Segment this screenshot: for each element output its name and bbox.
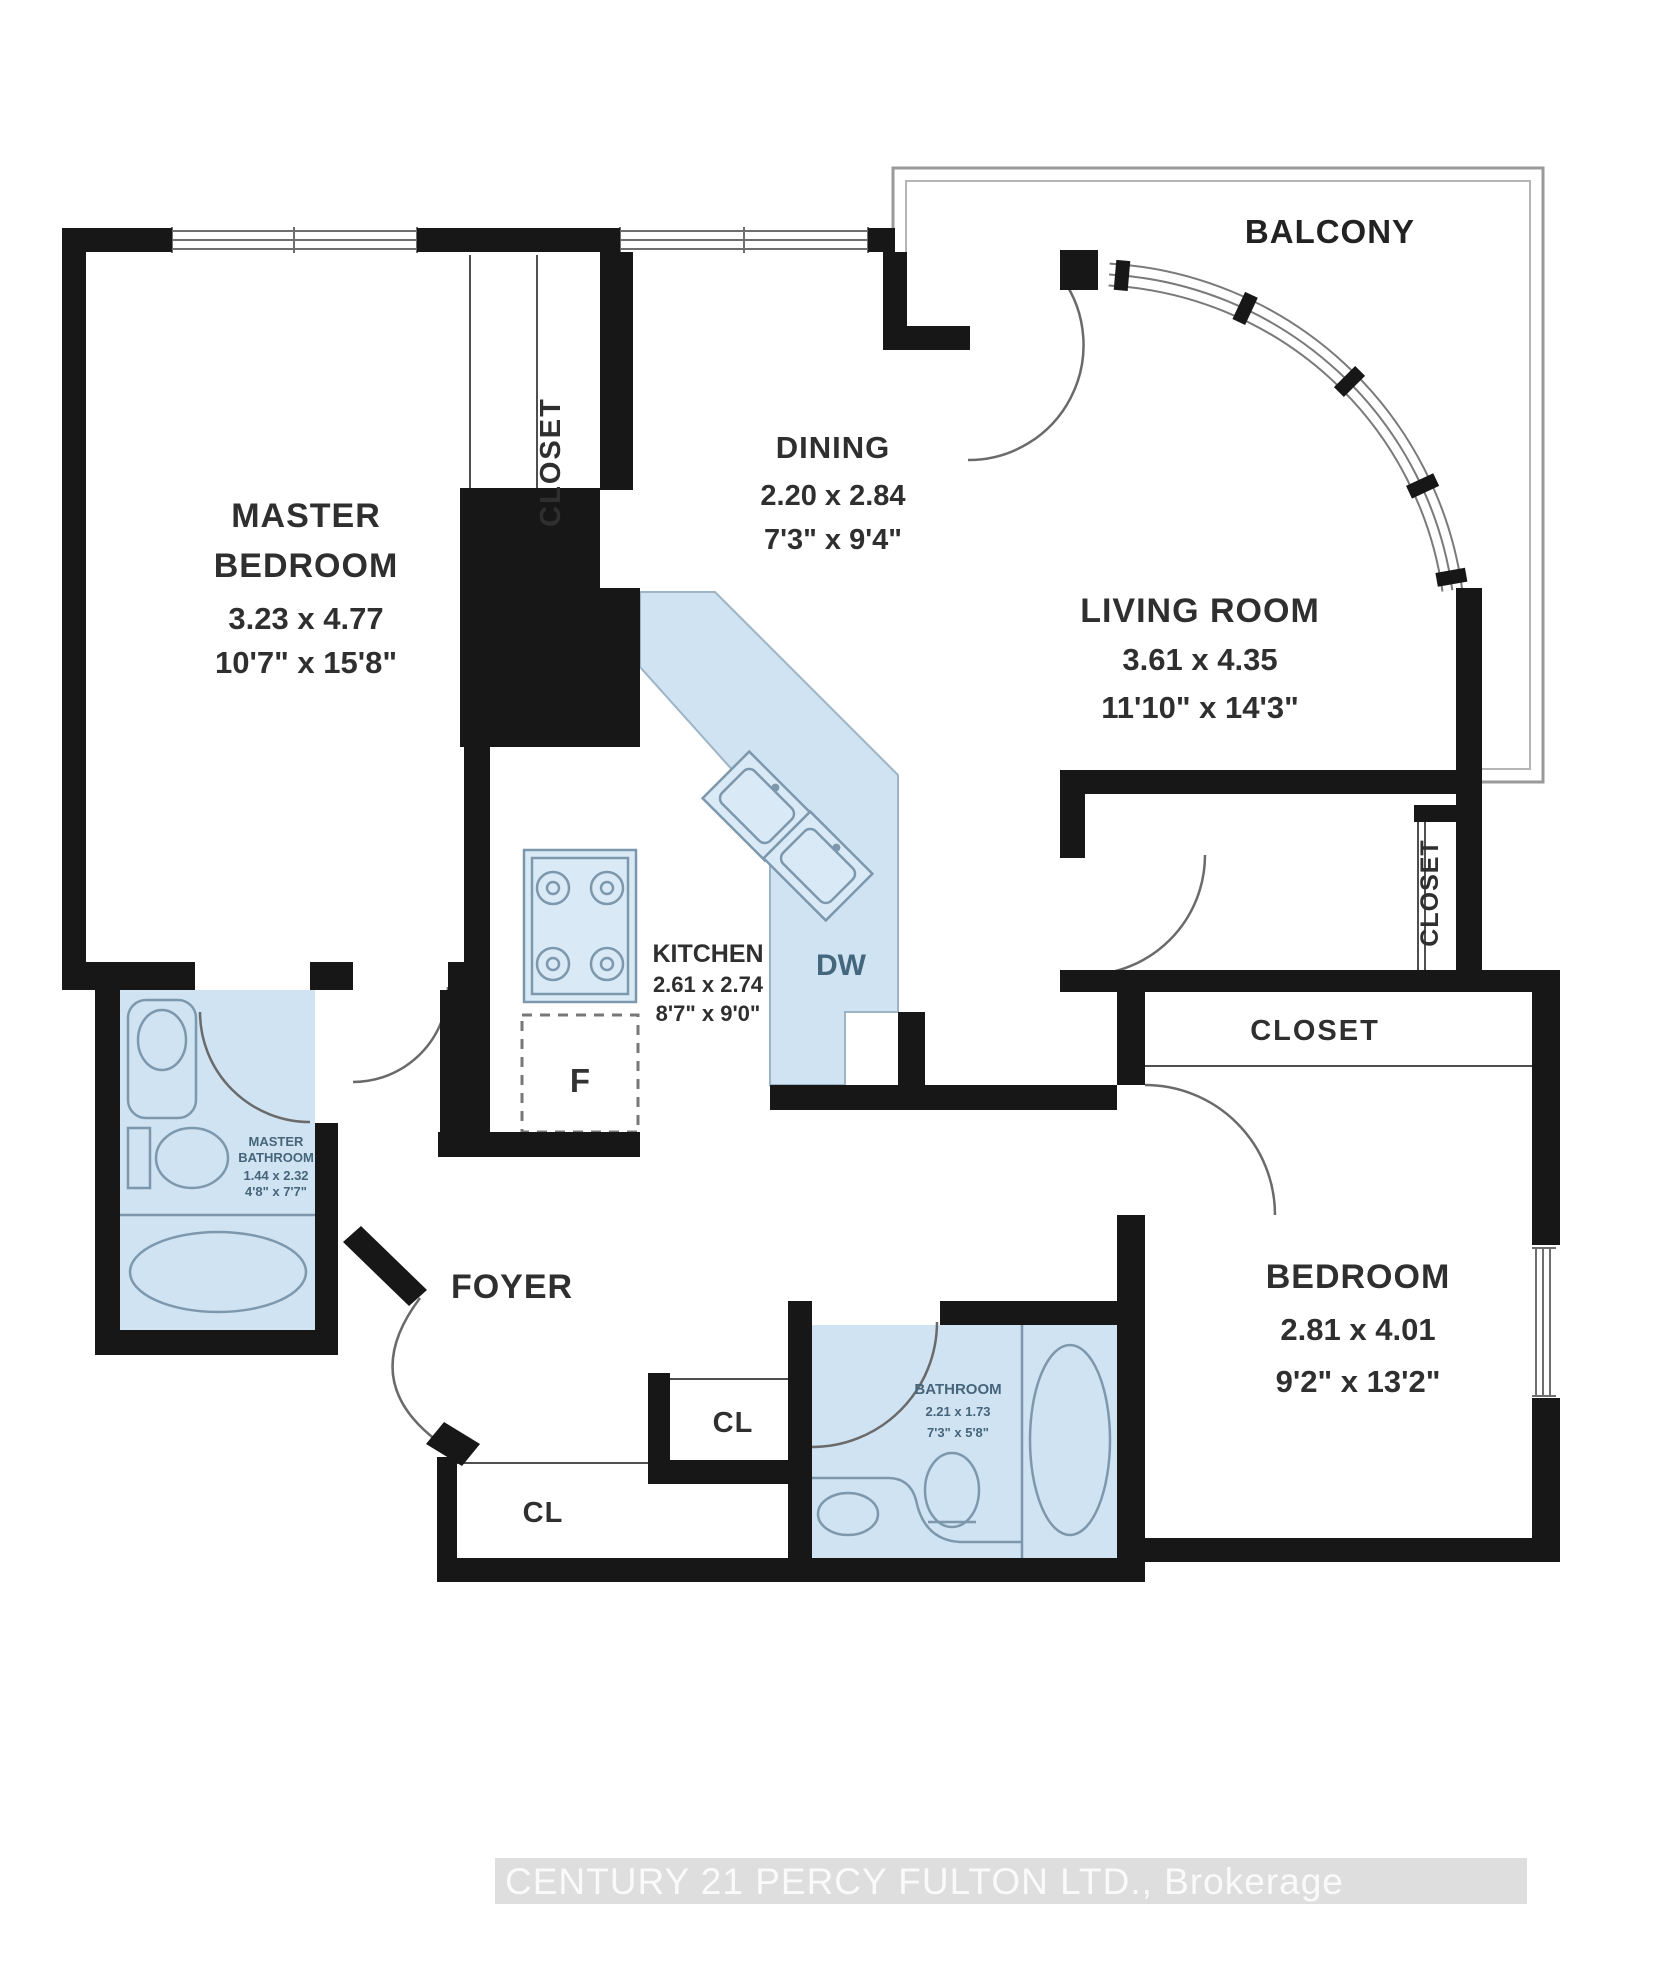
kitchen-metric: 2.61 x 2.74 [653,972,764,997]
dishwasher-label: DW [816,949,867,982]
living-room-imperial: 11'10" x 14'3" [1101,690,1299,725]
master-bedroom-metric: 3.23 x 4.77 [228,601,383,636]
bedroom-metric: 2.81 x 4.01 [1280,1312,1435,1347]
master-bedroom-imperial: 10'7" x 15'8" [215,645,397,680]
floor-plan-page: BALCONY MASTER BEDROOM 3.23 x 4.77 10'7"… [0,0,1680,1975]
living-room-label: LIVING ROOM [1080,592,1320,630]
master-bedroom-door [353,987,448,1082]
master-closet-label: CLOSET [535,397,567,527]
bedroom-closet-label: CLOSET [1250,1015,1380,1047]
svg-text:BEDROOM: BEDROOM [214,547,399,585]
curved-window-wall [1109,260,1468,592]
living-room-metric: 3.61 x 4.35 [1122,642,1277,677]
bedroom-imperial: 9'2" x 13'2" [1276,1364,1441,1399]
stove-icon [524,850,636,1002]
hall-door [1085,855,1205,975]
hall-closet-label: CLOSET [1416,839,1444,946]
master-bathroom-label: MASTER [249,1134,305,1149]
master-bathroom-metric: 1.44 x 2.32 [243,1168,308,1183]
dining-label: DINING [776,430,891,465]
svg-text:BATHROOM: BATHROOM [238,1150,314,1165]
bedroom-door [1145,1085,1275,1215]
entry-wall-stub [426,1422,480,1466]
bedroom-label: BEDROOM [1266,1258,1451,1296]
foyer-cl-label: CL [523,1497,564,1529]
balcony-door [968,278,1084,460]
entry-door [393,1298,436,1440]
bedroom-window [1532,1248,1556,1396]
master-bathroom-imperial: 4'8" x 7'7" [245,1184,307,1199]
bathroom-label: BATHROOM [914,1381,1001,1398]
master-bedroom-window [172,227,417,253]
floor-plan-drawing: BALCONY MASTER BEDROOM 3.23 x 4.77 10'7"… [0,0,1680,1975]
hall-cl-label: CL [713,1407,754,1439]
dining-imperial: 7'3" x 9'4" [764,524,902,556]
bathroom-metric: 2.21 x 1.73 [925,1404,990,1419]
door-swings [200,278,1275,1447]
master-bedroom-label: MASTER [231,497,381,535]
bathroom-imperial: 7'3" x 5'8" [927,1425,989,1440]
kitchen-imperial: 8'7" x 9'0" [656,1001,761,1026]
watermark: CENTURY 21 PERCY FULTON LTD., Brokerage [495,1858,1527,1904]
entry-wall-stub [343,1226,427,1306]
balcony-label: BALCONY [1245,213,1415,250]
dining-metric: 2.20 x 2.84 [760,480,905,512]
dining-window [620,227,868,253]
fridge-label: F [570,1062,590,1099]
foyer-label: FOYER [451,1268,573,1306]
kitchen-label: KITCHEN [652,940,763,968]
watermark-text: CENTURY 21 PERCY FULTON LTD., Brokerage [505,1861,1344,1902]
